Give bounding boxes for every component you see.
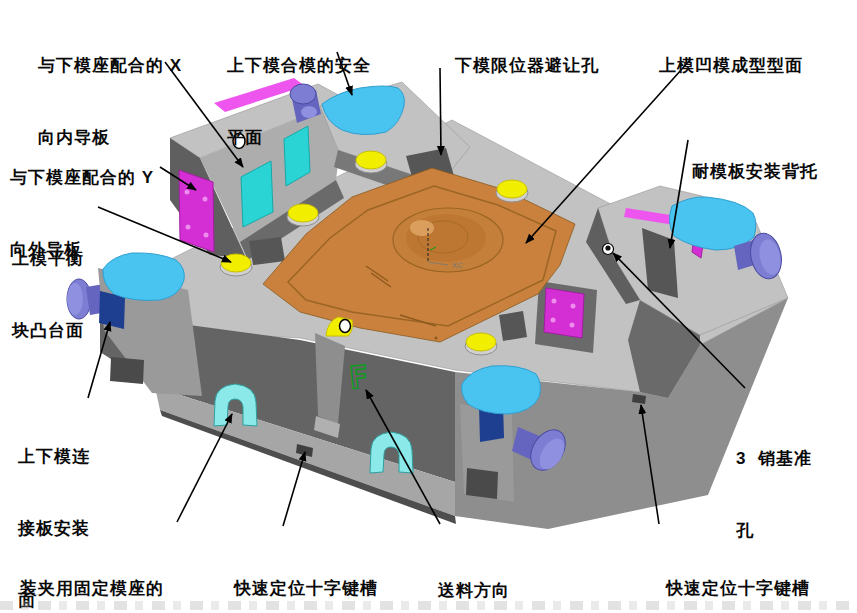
label-limiter-avoid-hole: 下模限位器避让孔 <box>455 6 599 102</box>
label-closing-safety-plane: 上下模合模的安全 平面 <box>227 6 371 174</box>
label-backplate-support: 耐模板安装背托 <box>692 112 818 208</box>
balance-pad <box>497 180 527 198</box>
label-datum-hole: 3 销基准 孔 <box>736 399 812 567</box>
diagram-stage: XC F <box>0 0 857 613</box>
arrow-connect-plate <box>88 322 110 398</box>
axis-label: XC <box>452 261 463 270</box>
connector-hole <box>466 468 498 499</box>
label-cavity-forming-surface: 上模凹模成型型面 <box>659 6 803 102</box>
connector-hole <box>110 357 144 384</box>
corner-cap-plate-right <box>462 366 541 414</box>
balance-pad <box>466 333 496 351</box>
guide-plate-right <box>544 288 584 338</box>
balance-pad <box>221 254 251 272</box>
arrow-limiter-hole <box>440 68 441 155</box>
label-balance-block-boss: 上模平衡 块凸台面 <box>12 199 84 367</box>
datum-hole-marker <box>603 244 614 255</box>
section-mark-circle-front <box>340 320 351 333</box>
watermark-strip <box>0 601 857 610</box>
balance-pad <box>288 204 318 222</box>
